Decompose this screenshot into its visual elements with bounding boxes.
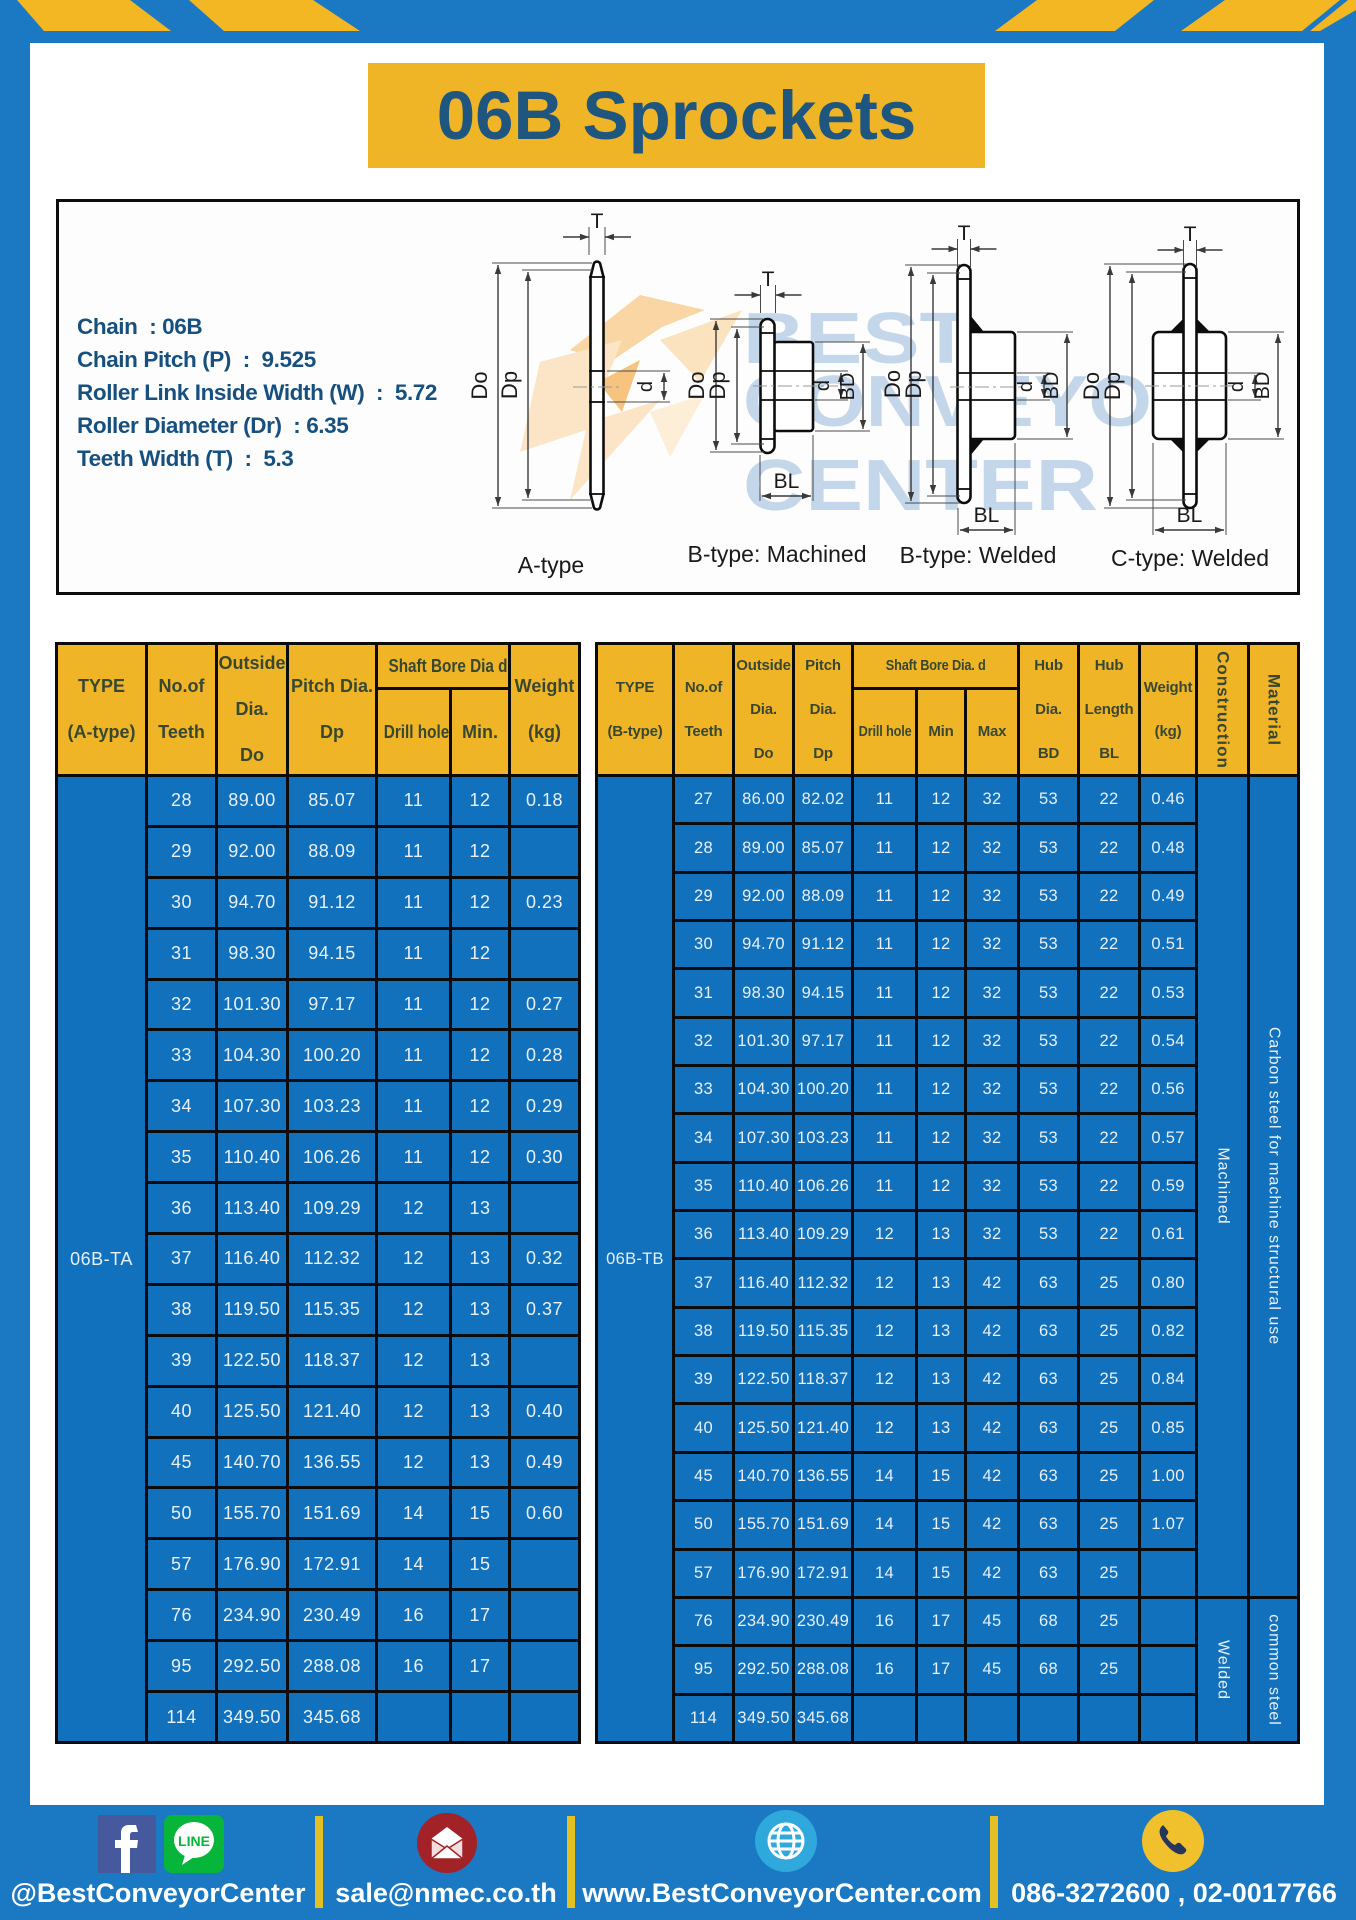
- svg-text:d: d: [635, 381, 657, 392]
- svg-text:Dp: Dp: [901, 370, 926, 398]
- svg-text:BD: BD: [1041, 372, 1063, 400]
- svg-text:BD: BD: [837, 373, 859, 401]
- svg-text:d: d: [1015, 381, 1037, 392]
- svg-text:T: T: [591, 210, 604, 233]
- svg-text:BL: BL: [1177, 504, 1203, 527]
- svg-text:BL: BL: [774, 470, 800, 493]
- svg-text:B-type: Machined: B-type: Machined: [688, 541, 867, 567]
- svg-text:Dp: Dp: [1100, 372, 1125, 400]
- svg-text:LINE: LINE: [178, 1833, 210, 1849]
- svg-text:B-type: Welded: B-type: Welded: [900, 542, 1057, 568]
- svg-text:T: T: [1184, 223, 1197, 246]
- svg-text:T: T: [958, 222, 971, 245]
- svg-text:Dp: Dp: [705, 371, 730, 399]
- svg-text:BD: BD: [1252, 372, 1274, 400]
- svg-text:T: T: [762, 268, 775, 291]
- svg-text:BL: BL: [974, 504, 1000, 527]
- svg-text:C-type: Welded: C-type: Welded: [1111, 545, 1269, 571]
- svg-text:d: d: [1226, 381, 1248, 392]
- svg-text:Do: Do: [467, 371, 492, 399]
- svg-text:Dp: Dp: [497, 371, 522, 399]
- svg-text:A-type: A-type: [518, 552, 584, 578]
- svg-text:d: d: [812, 380, 834, 391]
